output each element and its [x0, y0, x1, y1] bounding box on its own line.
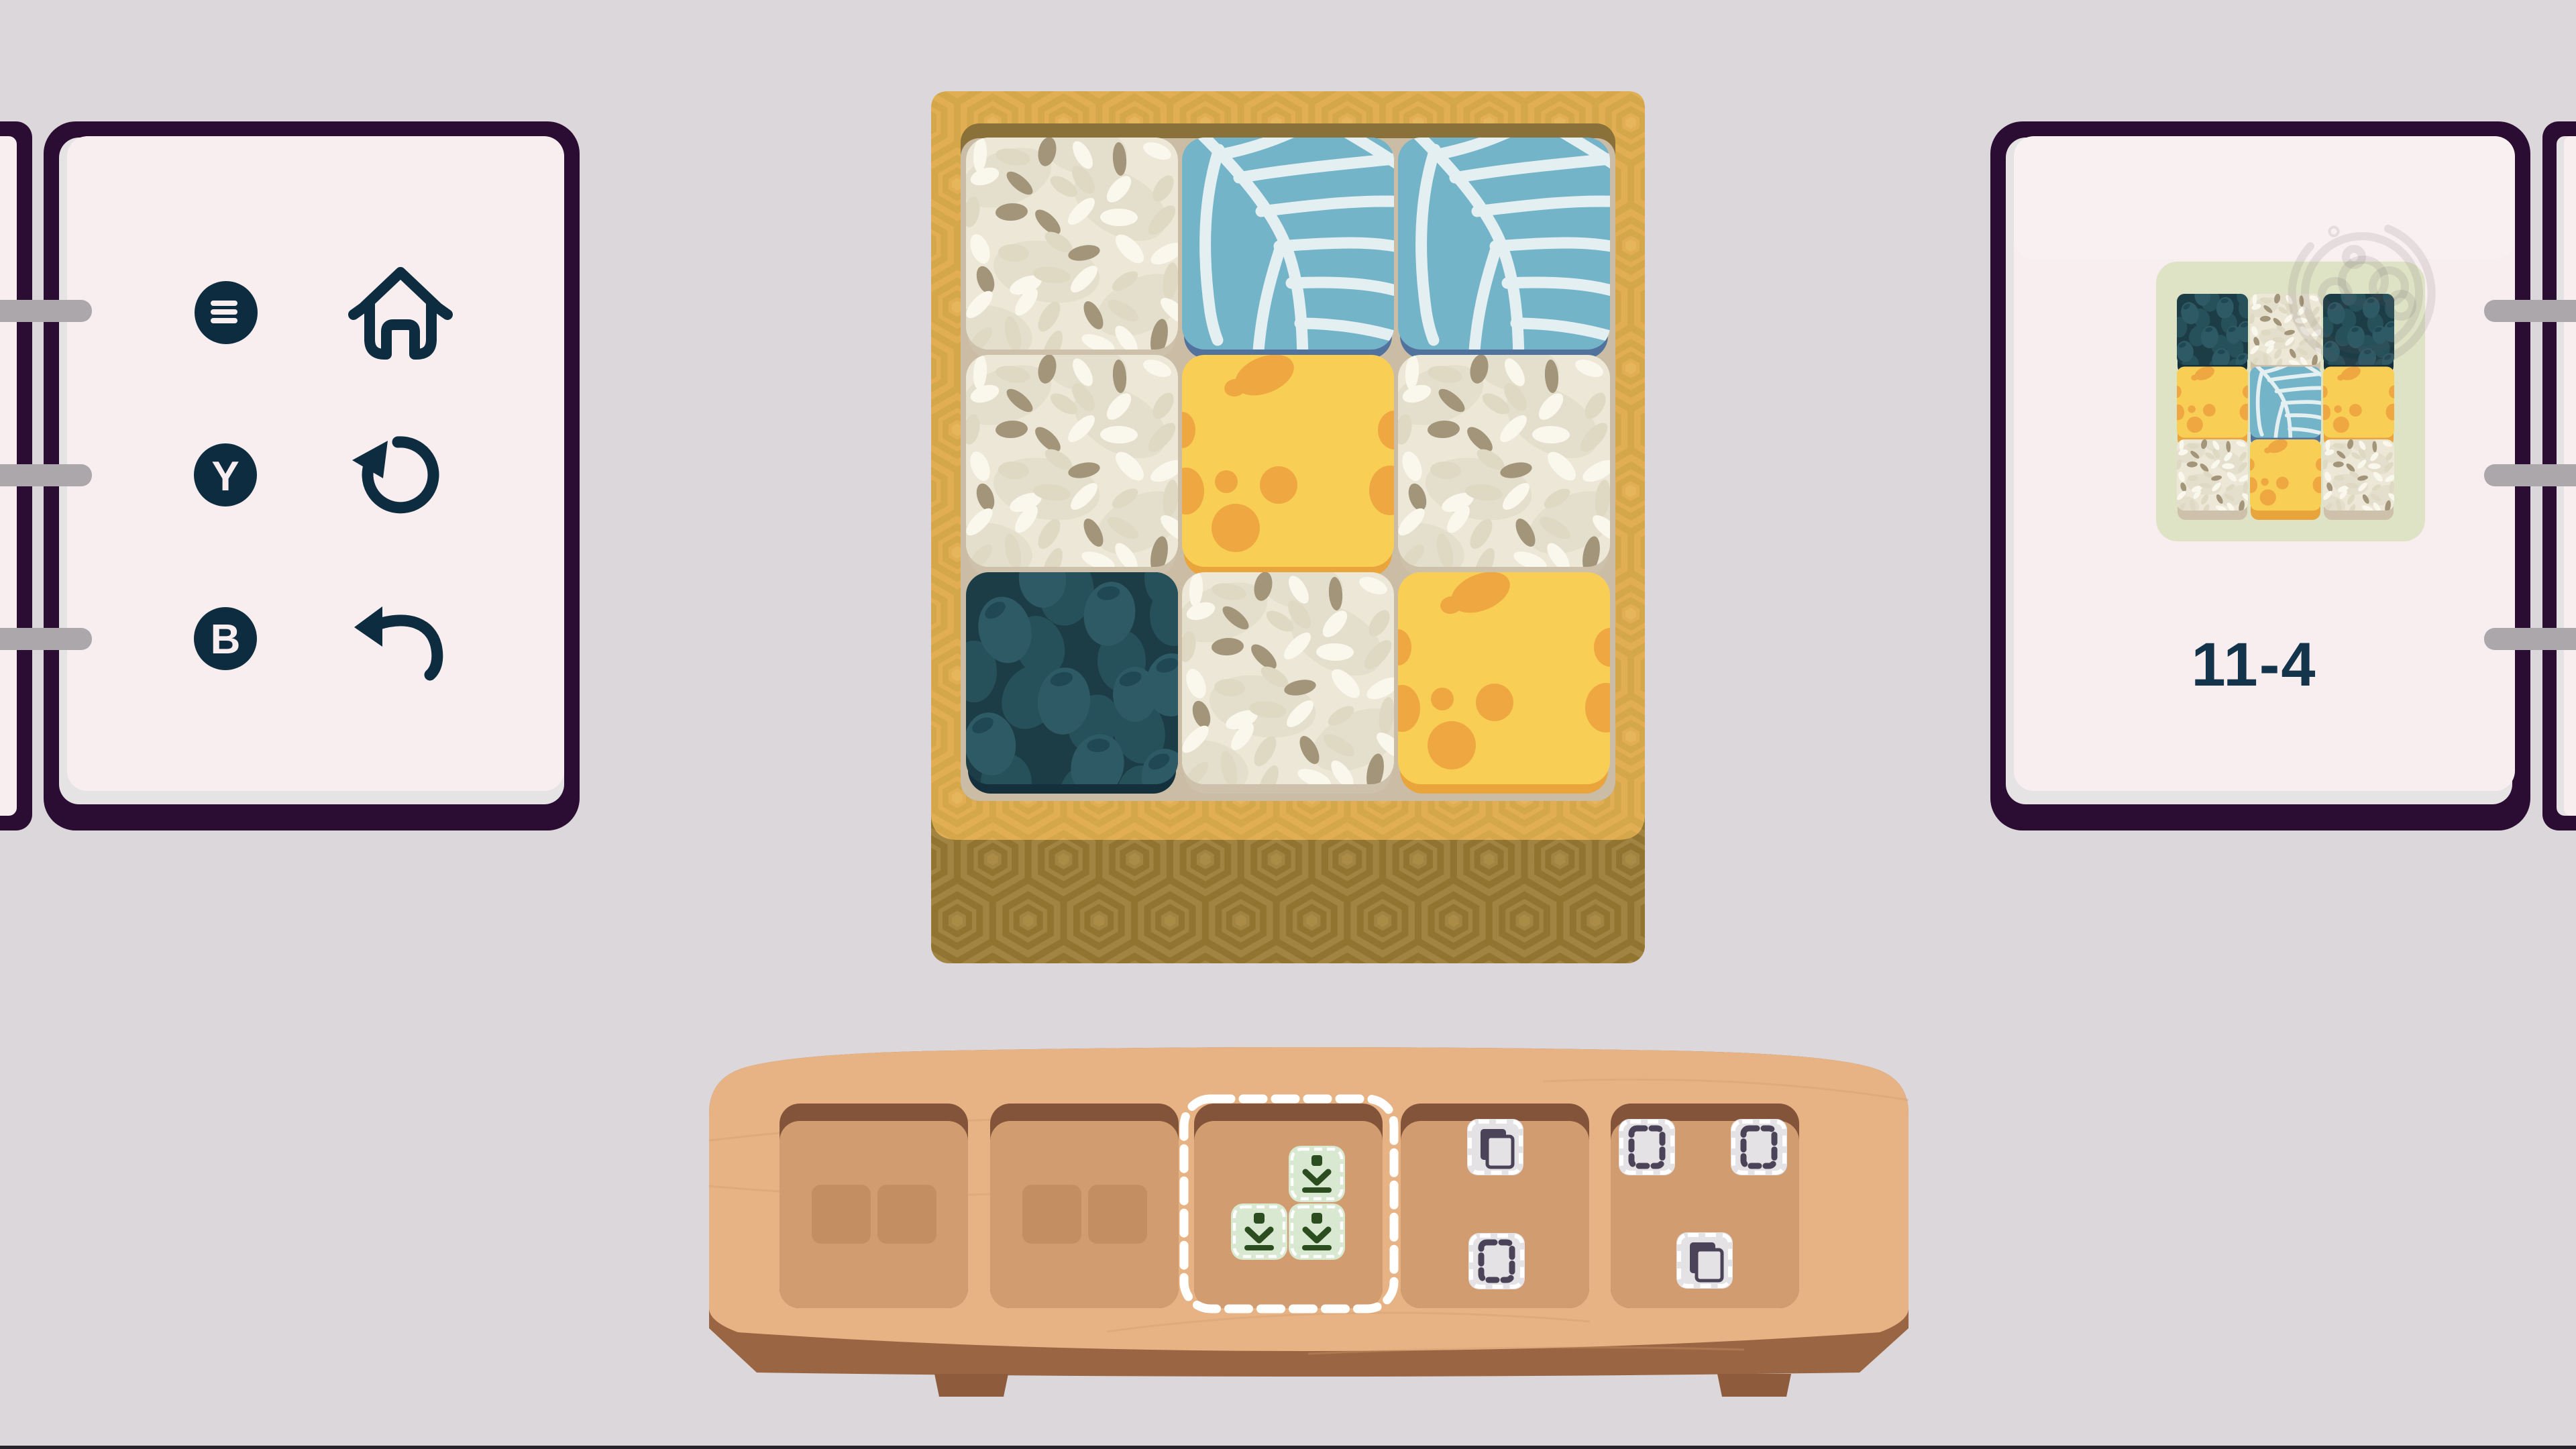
svg-text:11-4: 11-4: [2191, 631, 2316, 699]
svg-text:B: B: [211, 616, 241, 663]
svg-text:Y: Y: [211, 453, 239, 500]
